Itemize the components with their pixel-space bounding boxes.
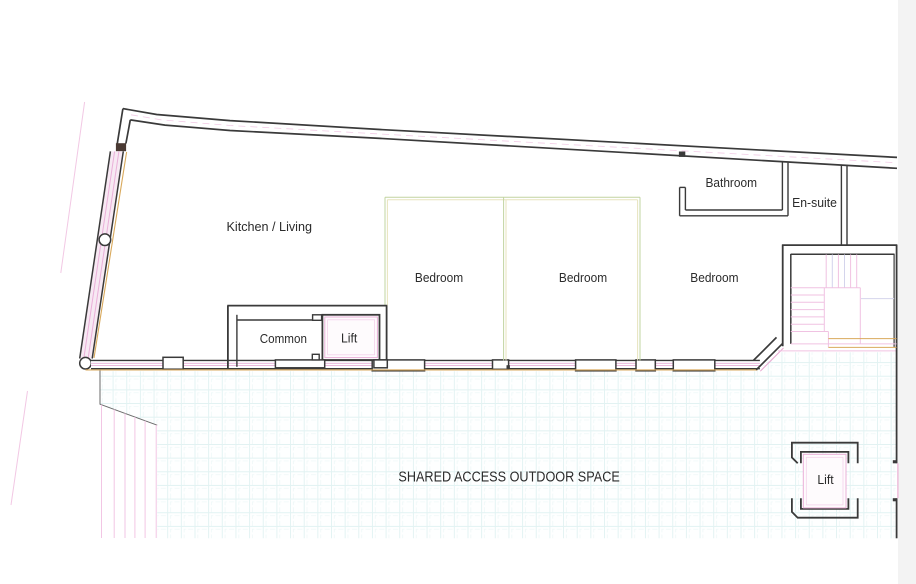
svg-text:Lift: Lift bbox=[817, 472, 834, 487]
svg-text:Bedroom: Bedroom bbox=[415, 270, 463, 285]
svg-text:Bathroom: Bathroom bbox=[706, 175, 758, 190]
svg-text:Bedroom: Bedroom bbox=[690, 270, 738, 285]
svg-text:Bedroom: Bedroom bbox=[559, 270, 607, 285]
svg-text:Common: Common bbox=[260, 331, 307, 346]
svg-text:SHARED ACCESS OUTDOOR SPACE: SHARED ACCESS OUTDOOR SPACE bbox=[398, 469, 620, 485]
svg-text:Lift: Lift bbox=[341, 330, 358, 345]
svg-text:En-suite: En-suite bbox=[792, 195, 837, 210]
svg-text:Kitchen / Living: Kitchen / Living bbox=[227, 219, 313, 234]
